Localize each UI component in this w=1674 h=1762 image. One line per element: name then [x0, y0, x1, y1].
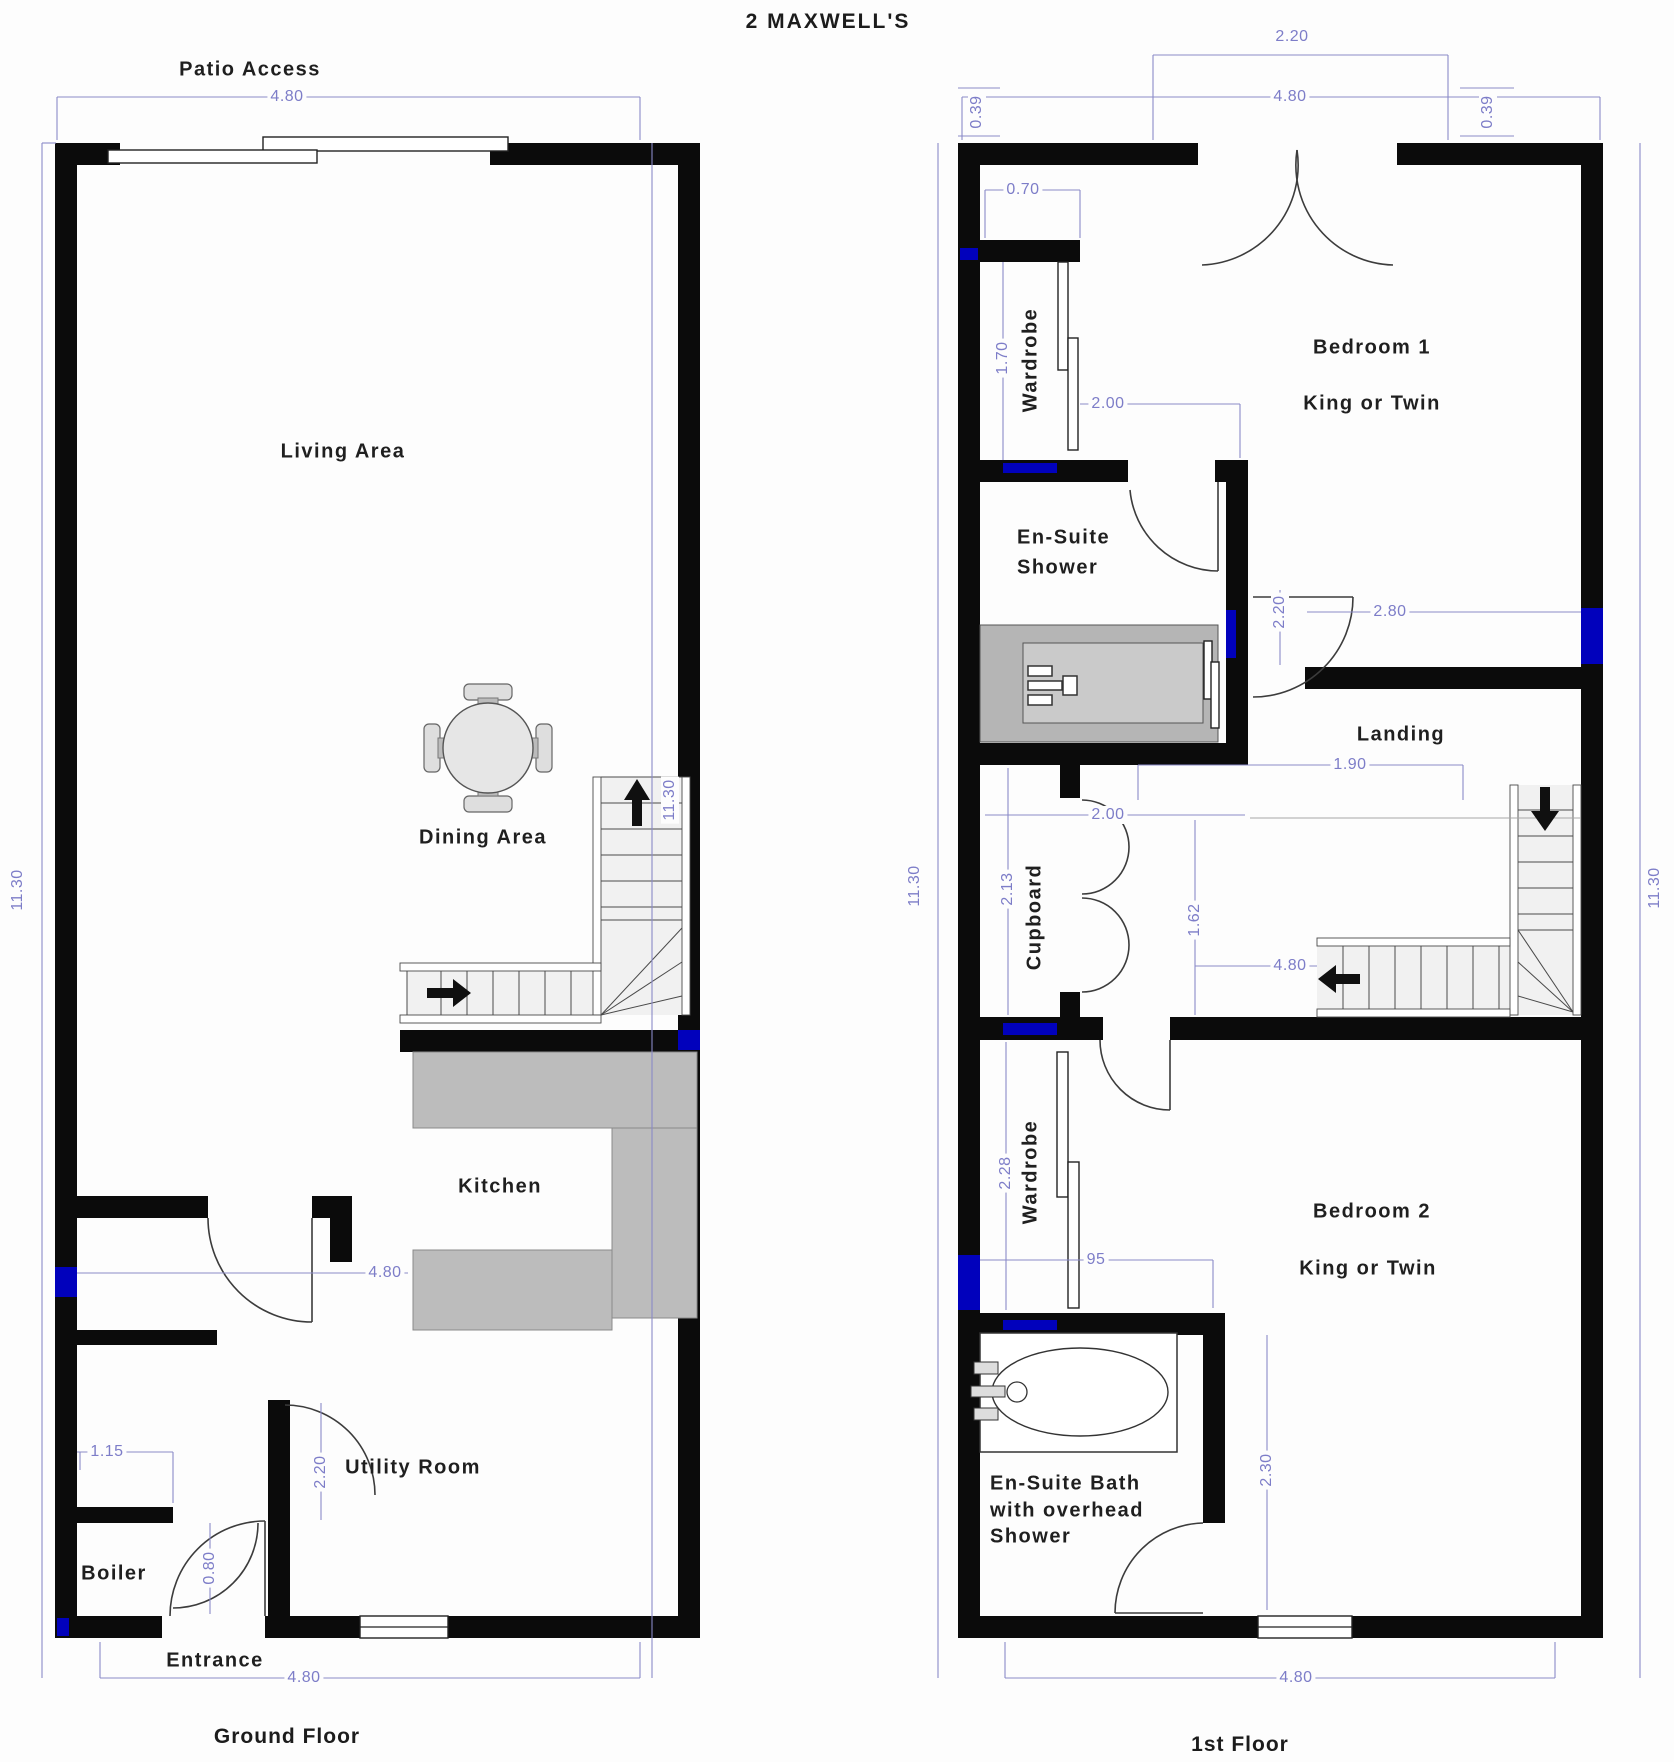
- room-label-wardrobe2: Wardrobe: [1020, 1120, 1043, 1225]
- dim-cupboard-length: 2.13: [999, 869, 1017, 908]
- room-label-patio-access: Patio Access: [179, 59, 321, 82]
- dim-cupboard-door: 2.00: [1088, 806, 1127, 824]
- shower-fitting-icon: [1028, 666, 1052, 676]
- kitchen-counters: [413, 1052, 697, 1330]
- dim-patio-doors: 2.20: [1272, 28, 1311, 46]
- room-label-bath-line2: with overhead: [990, 1500, 1144, 1523]
- dim-hall-width: 1.15: [87, 1443, 126, 1461]
- first-floor-window: [1258, 1616, 1352, 1638]
- wardrobe1-sliding-doors: [1058, 262, 1078, 450]
- room-label-bath-line3: Shower: [990, 1526, 1071, 1549]
- room-label-ensuite-shower-line1: En-Suite: [1017, 527, 1110, 550]
- room-label-wardrobe1: Wardrobe: [1020, 308, 1043, 413]
- dim-utility-door: 2.20: [312, 1452, 330, 1491]
- floor-plan-drawing: [0, 0, 1674, 1762]
- room-label-bedroom1: Bedroom 1: [1313, 337, 1431, 360]
- dim-first-right-height: 11.30: [1646, 864, 1664, 911]
- room-label-living-area: Living Area: [281, 441, 406, 464]
- dim-bath-length: 2.30: [1258, 1450, 1276, 1489]
- dim-shower-width: 2.00: [1088, 395, 1127, 413]
- room-label-bedroom1-sub: King or Twin: [1303, 393, 1441, 416]
- first-floor-blue-markers: [958, 248, 1603, 1330]
- ground-floor-dimension-lines: [42, 97, 652, 1678]
- dim-boiler-door: 0.80: [201, 1548, 219, 1587]
- room-label-dining-area: Dining Area: [419, 827, 547, 850]
- dim-first-bottom-width: 4.80: [1276, 1669, 1315, 1687]
- dim-ground-inner-width: 4.80: [365, 1264, 404, 1282]
- room-label-bedroom2: Bedroom 2: [1313, 1201, 1431, 1224]
- dim-left-offset: 0.39: [968, 92, 986, 131]
- wardrobe2-sliding-doors: [1057, 1052, 1079, 1308]
- page-title: 2 MAXWELL'S: [746, 10, 911, 34]
- room-label-cupboard: Cupboard: [1024, 864, 1047, 970]
- room-label-bedroom2-sub: King or Twin: [1299, 1258, 1437, 1281]
- dim-ground-top-width: 4.80: [267, 88, 306, 106]
- dim-right-offset: 0.39: [1479, 92, 1497, 131]
- dim-ground-left-height: 11.30: [9, 866, 27, 913]
- room-label-bath-line1: En-Suite Bath: [990, 1473, 1141, 1496]
- bath-taps-icon: [974, 1362, 998, 1374]
- dim-bedroom1-door: 2.20: [1271, 592, 1289, 631]
- dim-stair-well: 1.62: [1186, 900, 1204, 939]
- dining-table: [424, 684, 552, 812]
- dim-bedroom1-width: 2.80: [1370, 603, 1409, 621]
- room-label-kitchen: Kitchen: [458, 1176, 542, 1199]
- dining-chair-south: [464, 796, 512, 812]
- room-label-landing: Landing: [1357, 724, 1445, 747]
- dim-stairs-length: 4.80: [1270, 957, 1309, 975]
- bath-tub: [971, 1333, 1177, 1452]
- dim-first-left-height: 11.30: [906, 862, 924, 909]
- ground-floor-window: [360, 1616, 448, 1638]
- room-label-ensuite-shower-line2: Shower: [1017, 557, 1098, 580]
- patio-sliding-doors: [108, 137, 508, 163]
- dim-wardrobe1-length: 1.70: [994, 338, 1012, 377]
- first-floor-stairs: [1250, 785, 1581, 1017]
- dim-wardrobe2-length: 2.28: [997, 1153, 1015, 1192]
- dim-landing-width: 1.90: [1330, 756, 1369, 774]
- room-label-utility-room: Utility Room: [345, 1457, 481, 1480]
- dim-ground-right-height: 11.30: [661, 776, 679, 823]
- floorplan-page: 2 MAXWELL'S Patio Access 4.80 Living Are…: [0, 0, 1674, 1762]
- dim-ground-bottom-width: 4.80: [284, 1669, 323, 1687]
- dim-wardrobe1-depth: 0.70: [1003, 181, 1042, 199]
- room-label-entrance: Entrance: [166, 1650, 264, 1673]
- dim-wardrobe2-alcove: 95: [1084, 1251, 1109, 1269]
- ground-floor-stairs: [400, 777, 690, 1023]
- shower-tray: [980, 625, 1219, 742]
- caption-first-floor: 1st Floor: [1191, 1733, 1289, 1757]
- dim-first-top-width: 4.80: [1270, 88, 1309, 106]
- room-label-boiler: Boiler: [81, 1563, 147, 1586]
- caption-ground-floor: Ground Floor: [214, 1725, 360, 1749]
